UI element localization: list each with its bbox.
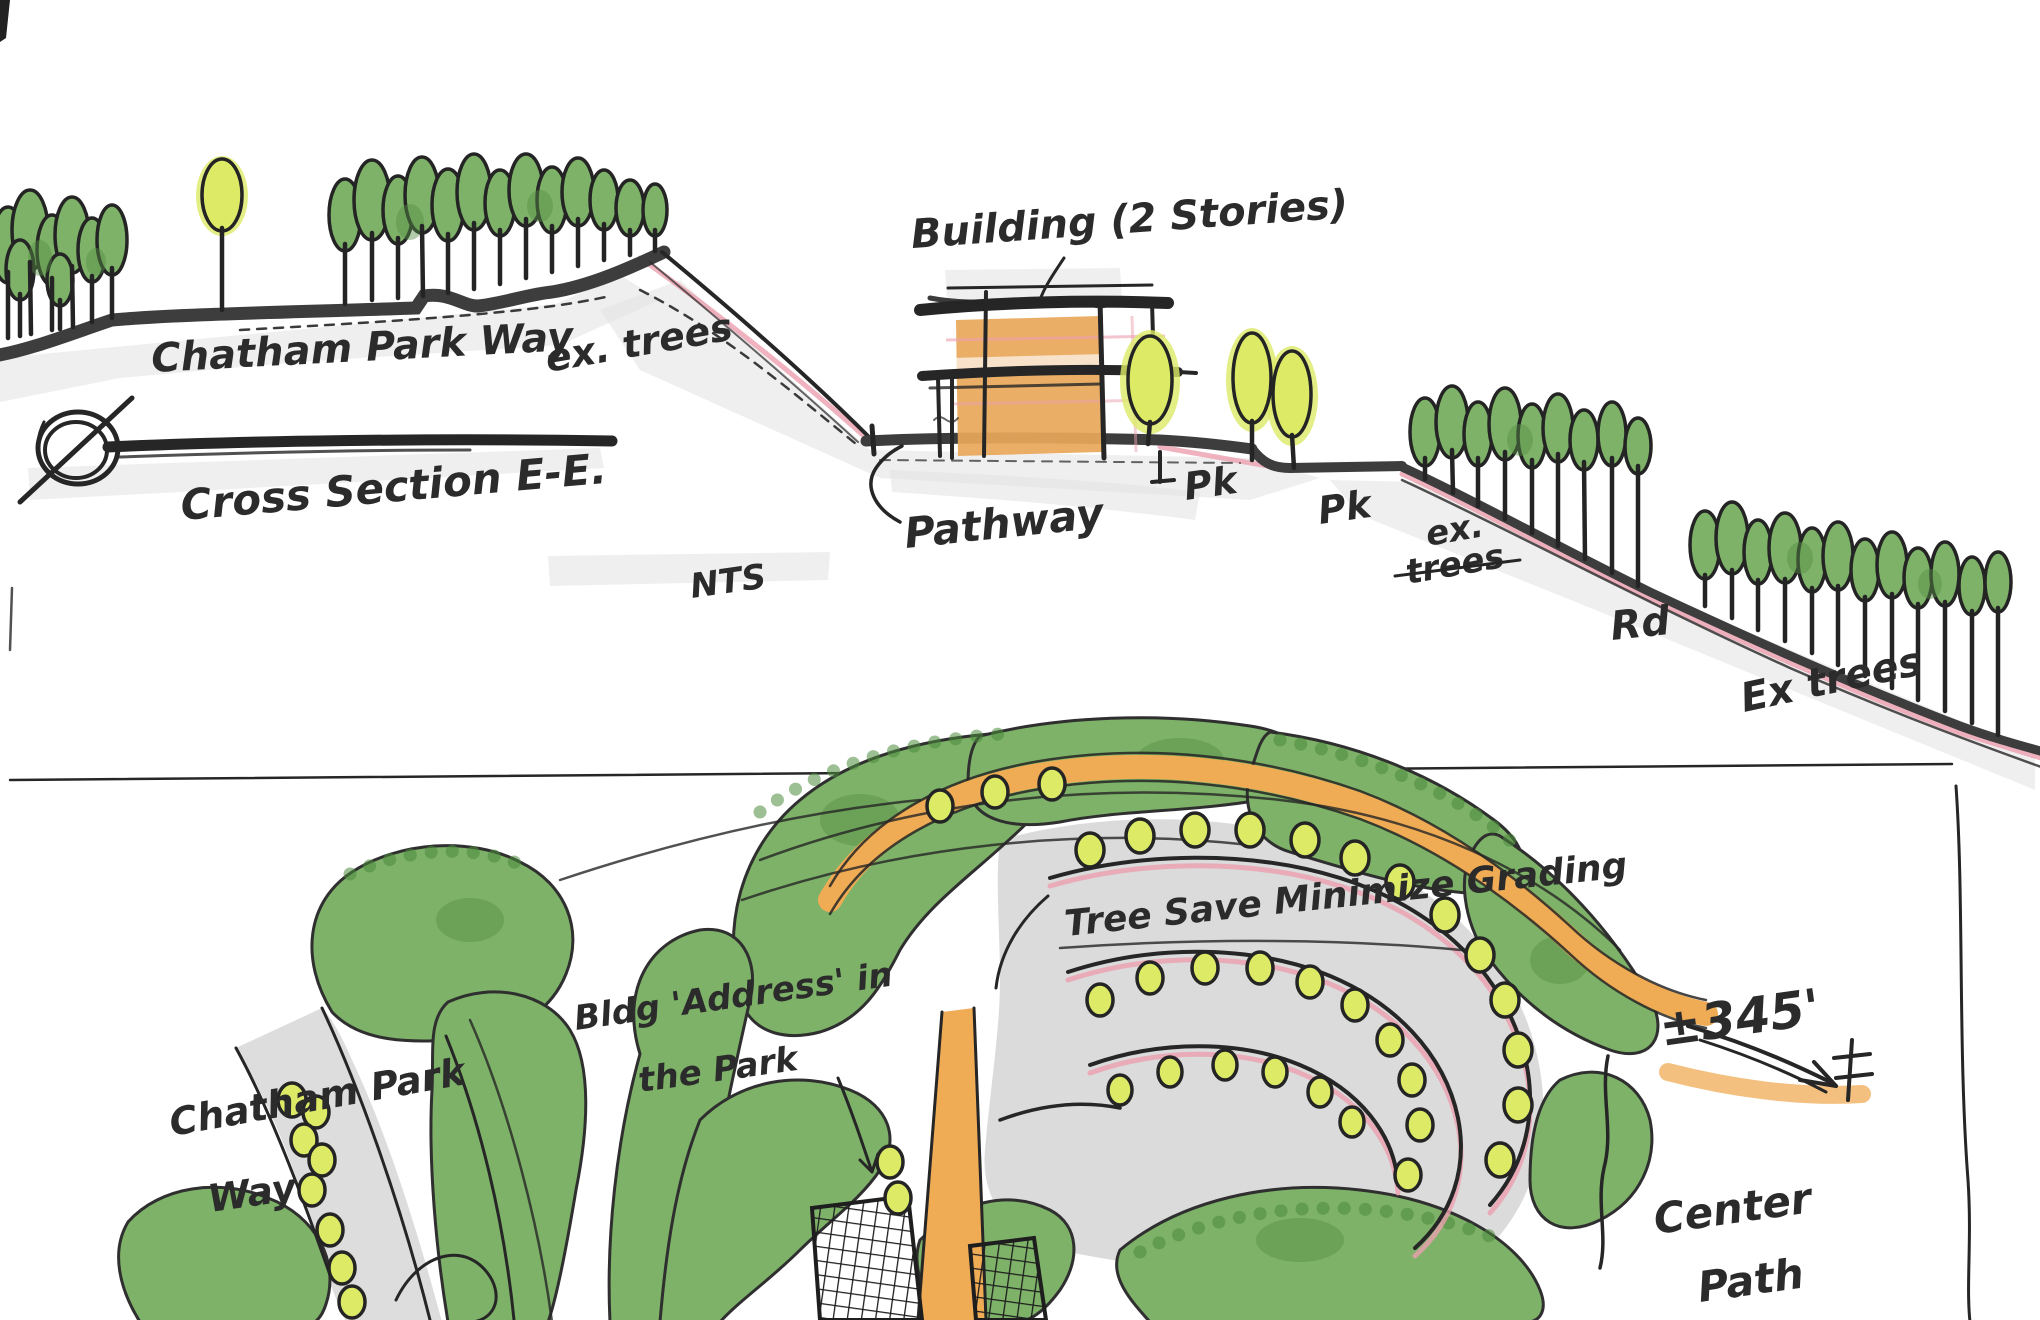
canopy-shade [1507, 424, 1533, 456]
building-vertical-left [984, 292, 986, 456]
plan-tree [1504, 1088, 1532, 1122]
plan-tree [1192, 952, 1218, 984]
sketch-page: Chatham Park Way ex. trees Building (2 S… [0, 0, 2040, 1320]
hatched-building [970, 1238, 1046, 1320]
plan-tree [1247, 952, 1273, 984]
canopy-shade [1918, 569, 1942, 599]
plan-tree [1340, 1107, 1364, 1137]
sketch-canvas: Chatham Park Way ex. trees Building (2 S… [0, 0, 2040, 1320]
canopy-shade [1787, 542, 1813, 574]
tree-canopy [590, 170, 618, 230]
plan-tree [885, 1182, 911, 1214]
label-center-path-1: Center [1651, 1173, 1817, 1244]
plan-tree [299, 1174, 325, 1206]
plan-tree [1076, 833, 1104, 867]
canopy-shade [396, 204, 424, 240]
plan-tree [927, 790, 953, 822]
label-pathway: Pathway [902, 488, 1107, 558]
yellow-tree-canopy [1273, 351, 1311, 437]
plan-tree [1399, 1064, 1425, 1096]
tree-canopy [616, 180, 644, 236]
plan-tree [1486, 1143, 1514, 1177]
canopy-shade [527, 190, 553, 222]
label-road-left: Chatham Park Way [150, 314, 576, 382]
plan-tree [339, 1286, 365, 1318]
yellow-tree-canopy [1233, 333, 1271, 423]
plan-tree [1291, 823, 1319, 857]
tree-canopy [1877, 532, 1907, 598]
plan-tree [1236, 813, 1264, 847]
plan-tree [1308, 1077, 1332, 1107]
yellow-tree-canopy [202, 159, 242, 231]
pathway-edge-tick [872, 426, 874, 454]
label-rd: Rd [1608, 598, 1672, 650]
plan-tree [982, 776, 1008, 808]
plan-tree [1108, 1075, 1132, 1105]
canopy-shade [1256, 1218, 1344, 1262]
label-building: Building (2 Stories) [909, 182, 1349, 258]
plan-tree [1341, 841, 1369, 875]
tree-canopy [1985, 552, 2011, 612]
plan-tree [1039, 768, 1065, 800]
plan-tree [1377, 1024, 1403, 1056]
plan-tree [1181, 813, 1209, 847]
plan-tree [1158, 1057, 1182, 1087]
label-spot-elevation: ±345' [1656, 978, 1824, 1058]
tree-canopy [1823, 522, 1853, 590]
marker-bar [108, 440, 612, 447]
green-mass [1530, 1072, 1652, 1228]
label-center-path-2: Path [1695, 1249, 1807, 1312]
label-pk-1: Pk [1181, 458, 1242, 509]
plan-tree [877, 1146, 903, 1178]
canopy-shade [436, 898, 504, 942]
plan-tree [1297, 966, 1323, 998]
plan-tree [1263, 1057, 1287, 1087]
label-pk-2: Pk [1315, 482, 1376, 533]
plan-tree [309, 1144, 335, 1176]
cross-section-view: Chatham Park Way ex. trees Building (2 S… [0, 154, 2040, 790]
plan-tree [1504, 1033, 1532, 1067]
plan-view: Tree Save Minimize Grading Bldg 'Address… [119, 718, 1872, 1320]
plan-tree [1342, 989, 1368, 1021]
right-margin-line [1956, 786, 1970, 1320]
plan-tree [1466, 938, 1494, 972]
plan-tree [1137, 962, 1163, 994]
tree-canopy [1851, 539, 1879, 601]
yellow-tree-canopy [1128, 336, 1172, 424]
plan-tree [1126, 819, 1154, 853]
plan-tree [1087, 984, 1113, 1016]
plan-tree [1213, 1050, 1237, 1080]
mid-floor-extension [1178, 372, 1196, 373]
plan-tree [1395, 1159, 1421, 1191]
canopy-shade [86, 248, 106, 276]
plan-tree [1491, 983, 1519, 1017]
left-margin-tick [10, 588, 12, 650]
hatched-building [812, 1196, 922, 1320]
plan-tree [329, 1252, 355, 1284]
tree-canopy [1959, 557, 1985, 615]
step-flat-band [1252, 449, 1402, 468]
plan-tree [317, 1214, 343, 1246]
plan-tree [1407, 1109, 1433, 1141]
scan-mark-corner [0, 0, 10, 42]
